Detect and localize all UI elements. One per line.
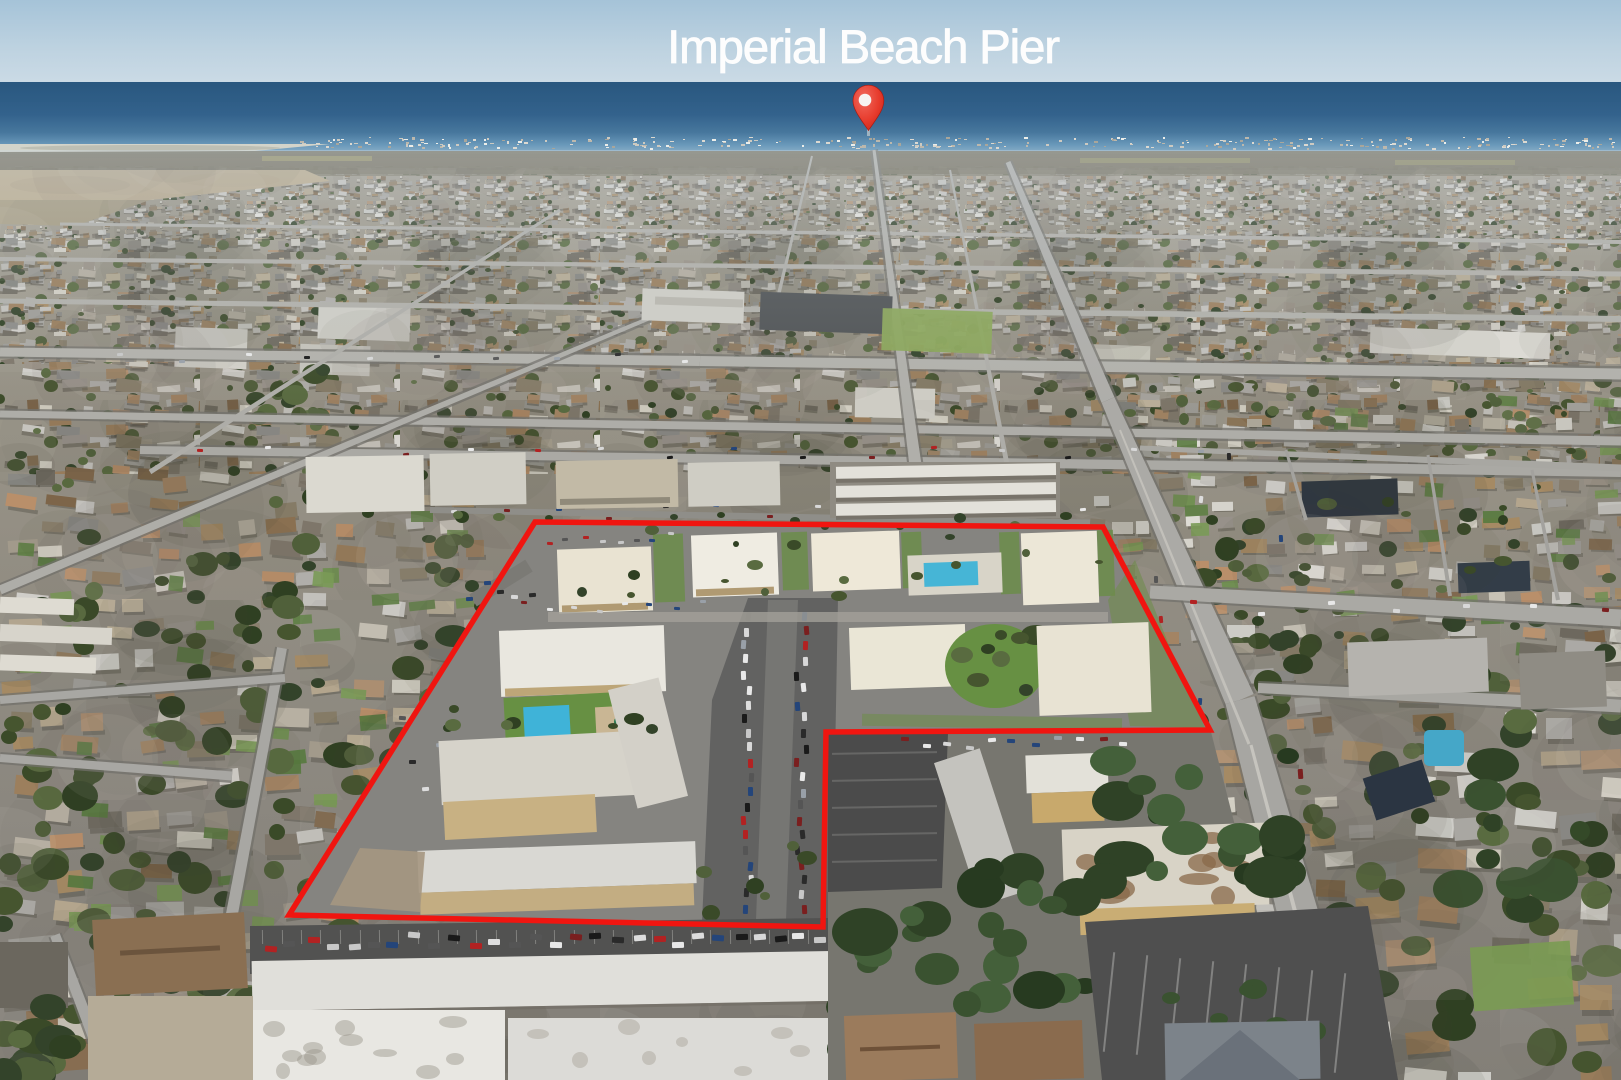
svg-text:Imperial Beach Pier: Imperial Beach Pier: [667, 21, 1060, 74]
